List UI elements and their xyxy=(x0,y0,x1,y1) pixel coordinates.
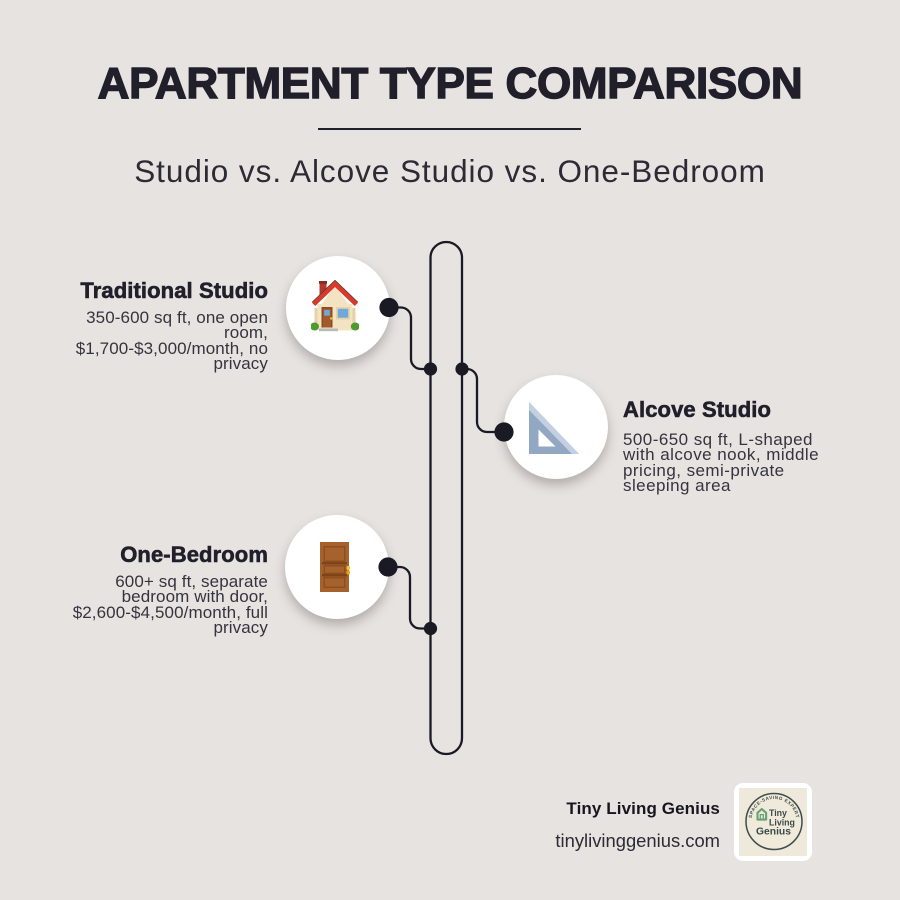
svg-text:Genius: Genius xyxy=(756,827,791,838)
